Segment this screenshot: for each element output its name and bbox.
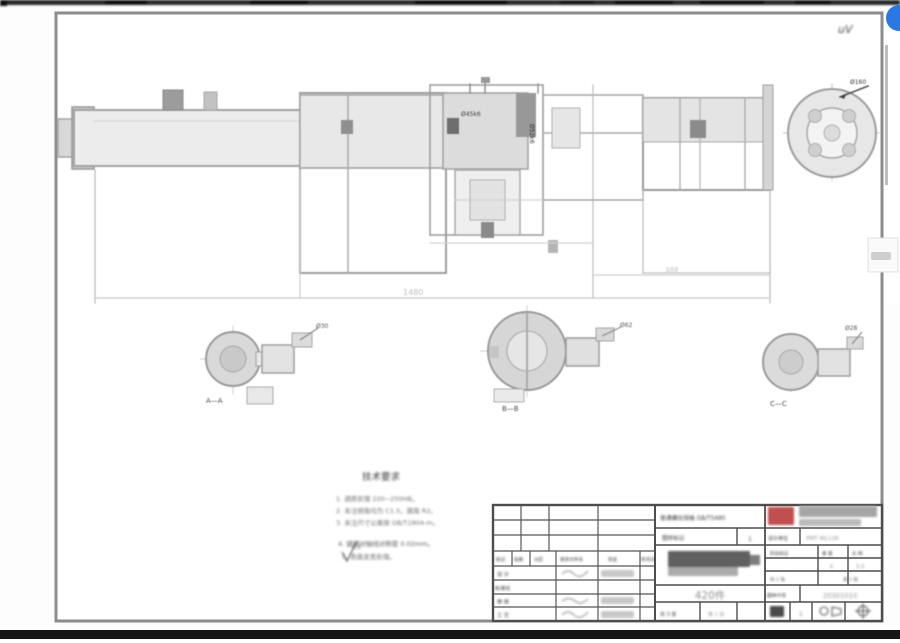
dim-callout-end: Ø160 xyxy=(850,79,866,86)
code-label: 图样代号 xyxy=(767,592,786,599)
scrollbar[interactable] xyxy=(885,45,888,185)
title-block: 标记 处数 分区 更改文件号 签名 年月日 设 计 标准化 审 核 工 艺 xyxy=(493,505,882,621)
stage-label: 阶段标记 xyxy=(770,550,789,557)
detail-c-leader-label: Ø28 xyxy=(845,325,858,332)
weight-value: 6 xyxy=(830,564,833,570)
bottom-left-a: 共 3 张 xyxy=(660,611,676,618)
detail-b-leader-label: Ø62 xyxy=(620,322,633,329)
sheet-info: 共 1 张 xyxy=(770,576,785,583)
code-value: 20301010 xyxy=(823,592,858,600)
rev-cell-value: 1 xyxy=(799,611,803,618)
company-stamp xyxy=(768,506,877,526)
rev-header-zone: 分区 xyxy=(534,556,544,563)
watermark-label: uV xyxy=(838,23,854,36)
detail-c-label: C—C xyxy=(770,400,787,408)
notes-title: 技术要求 xyxy=(362,471,401,483)
row-label-design: 设 计 xyxy=(497,570,509,578)
quantity-text: 420件 xyxy=(695,590,726,602)
rev-header-count: 处数 xyxy=(514,556,524,563)
unit-value: PMT WL126 xyxy=(806,536,839,542)
mid-dimension: 388 xyxy=(665,266,678,274)
bottom-left-b: 第 1 张 xyxy=(708,611,724,618)
row-label-check: 审 核 xyxy=(497,598,509,606)
dim-callout-left: Ø45k6 xyxy=(461,111,481,118)
bottom-chrome-bar xyxy=(0,630,900,639)
row-label-standard: 标准化 xyxy=(495,584,511,592)
dim-callout-mid: Ø52k6 xyxy=(528,124,535,144)
note-line-2: 2. 未注倒角均为 C1.5，圆角 R2。 xyxy=(336,506,437,515)
unit-label: 设计单位 xyxy=(768,535,788,542)
svg-text:6.3: 6.3 xyxy=(352,545,361,551)
rev-header-sign: 签名 xyxy=(608,556,617,563)
row-label-process: 工 艺 xyxy=(497,612,509,619)
note-line-3: 3. 未注尺寸公差按 GB/T1804-m。 xyxy=(336,518,439,527)
rev-header-file: 更改文件号 xyxy=(560,556,583,563)
note-line-1: 1. 调质处理 220~250HB。 xyxy=(336,494,418,503)
rev-header-date: 年月日 xyxy=(641,556,655,563)
rev-header-mark: 标记 xyxy=(496,556,506,563)
scale-value: 1:1 xyxy=(856,564,865,570)
mark-value: 1 xyxy=(748,535,752,543)
standard-spec-label: 普通螺纹规格 GB/T5480 xyxy=(660,514,726,522)
drawing-viewer: uV Ø45k6 Ø52k6 xyxy=(0,0,900,639)
detail-b-label: B—B xyxy=(502,405,519,413)
detail-a-label: A—A xyxy=(206,397,223,405)
scale-label: 比 例 xyxy=(852,550,863,557)
weight-label: 重 量 xyxy=(822,550,833,557)
page-info: 第 1 张 xyxy=(843,576,858,583)
detail-a-leader-label: Ø30 xyxy=(316,323,329,330)
mark-label: 图样标记 xyxy=(662,534,685,542)
approval-stamp-icon xyxy=(770,606,784,617)
note-line-5: 5. 表面发黑处理。 xyxy=(342,552,396,561)
overall-dimension: 1480 xyxy=(403,288,423,297)
